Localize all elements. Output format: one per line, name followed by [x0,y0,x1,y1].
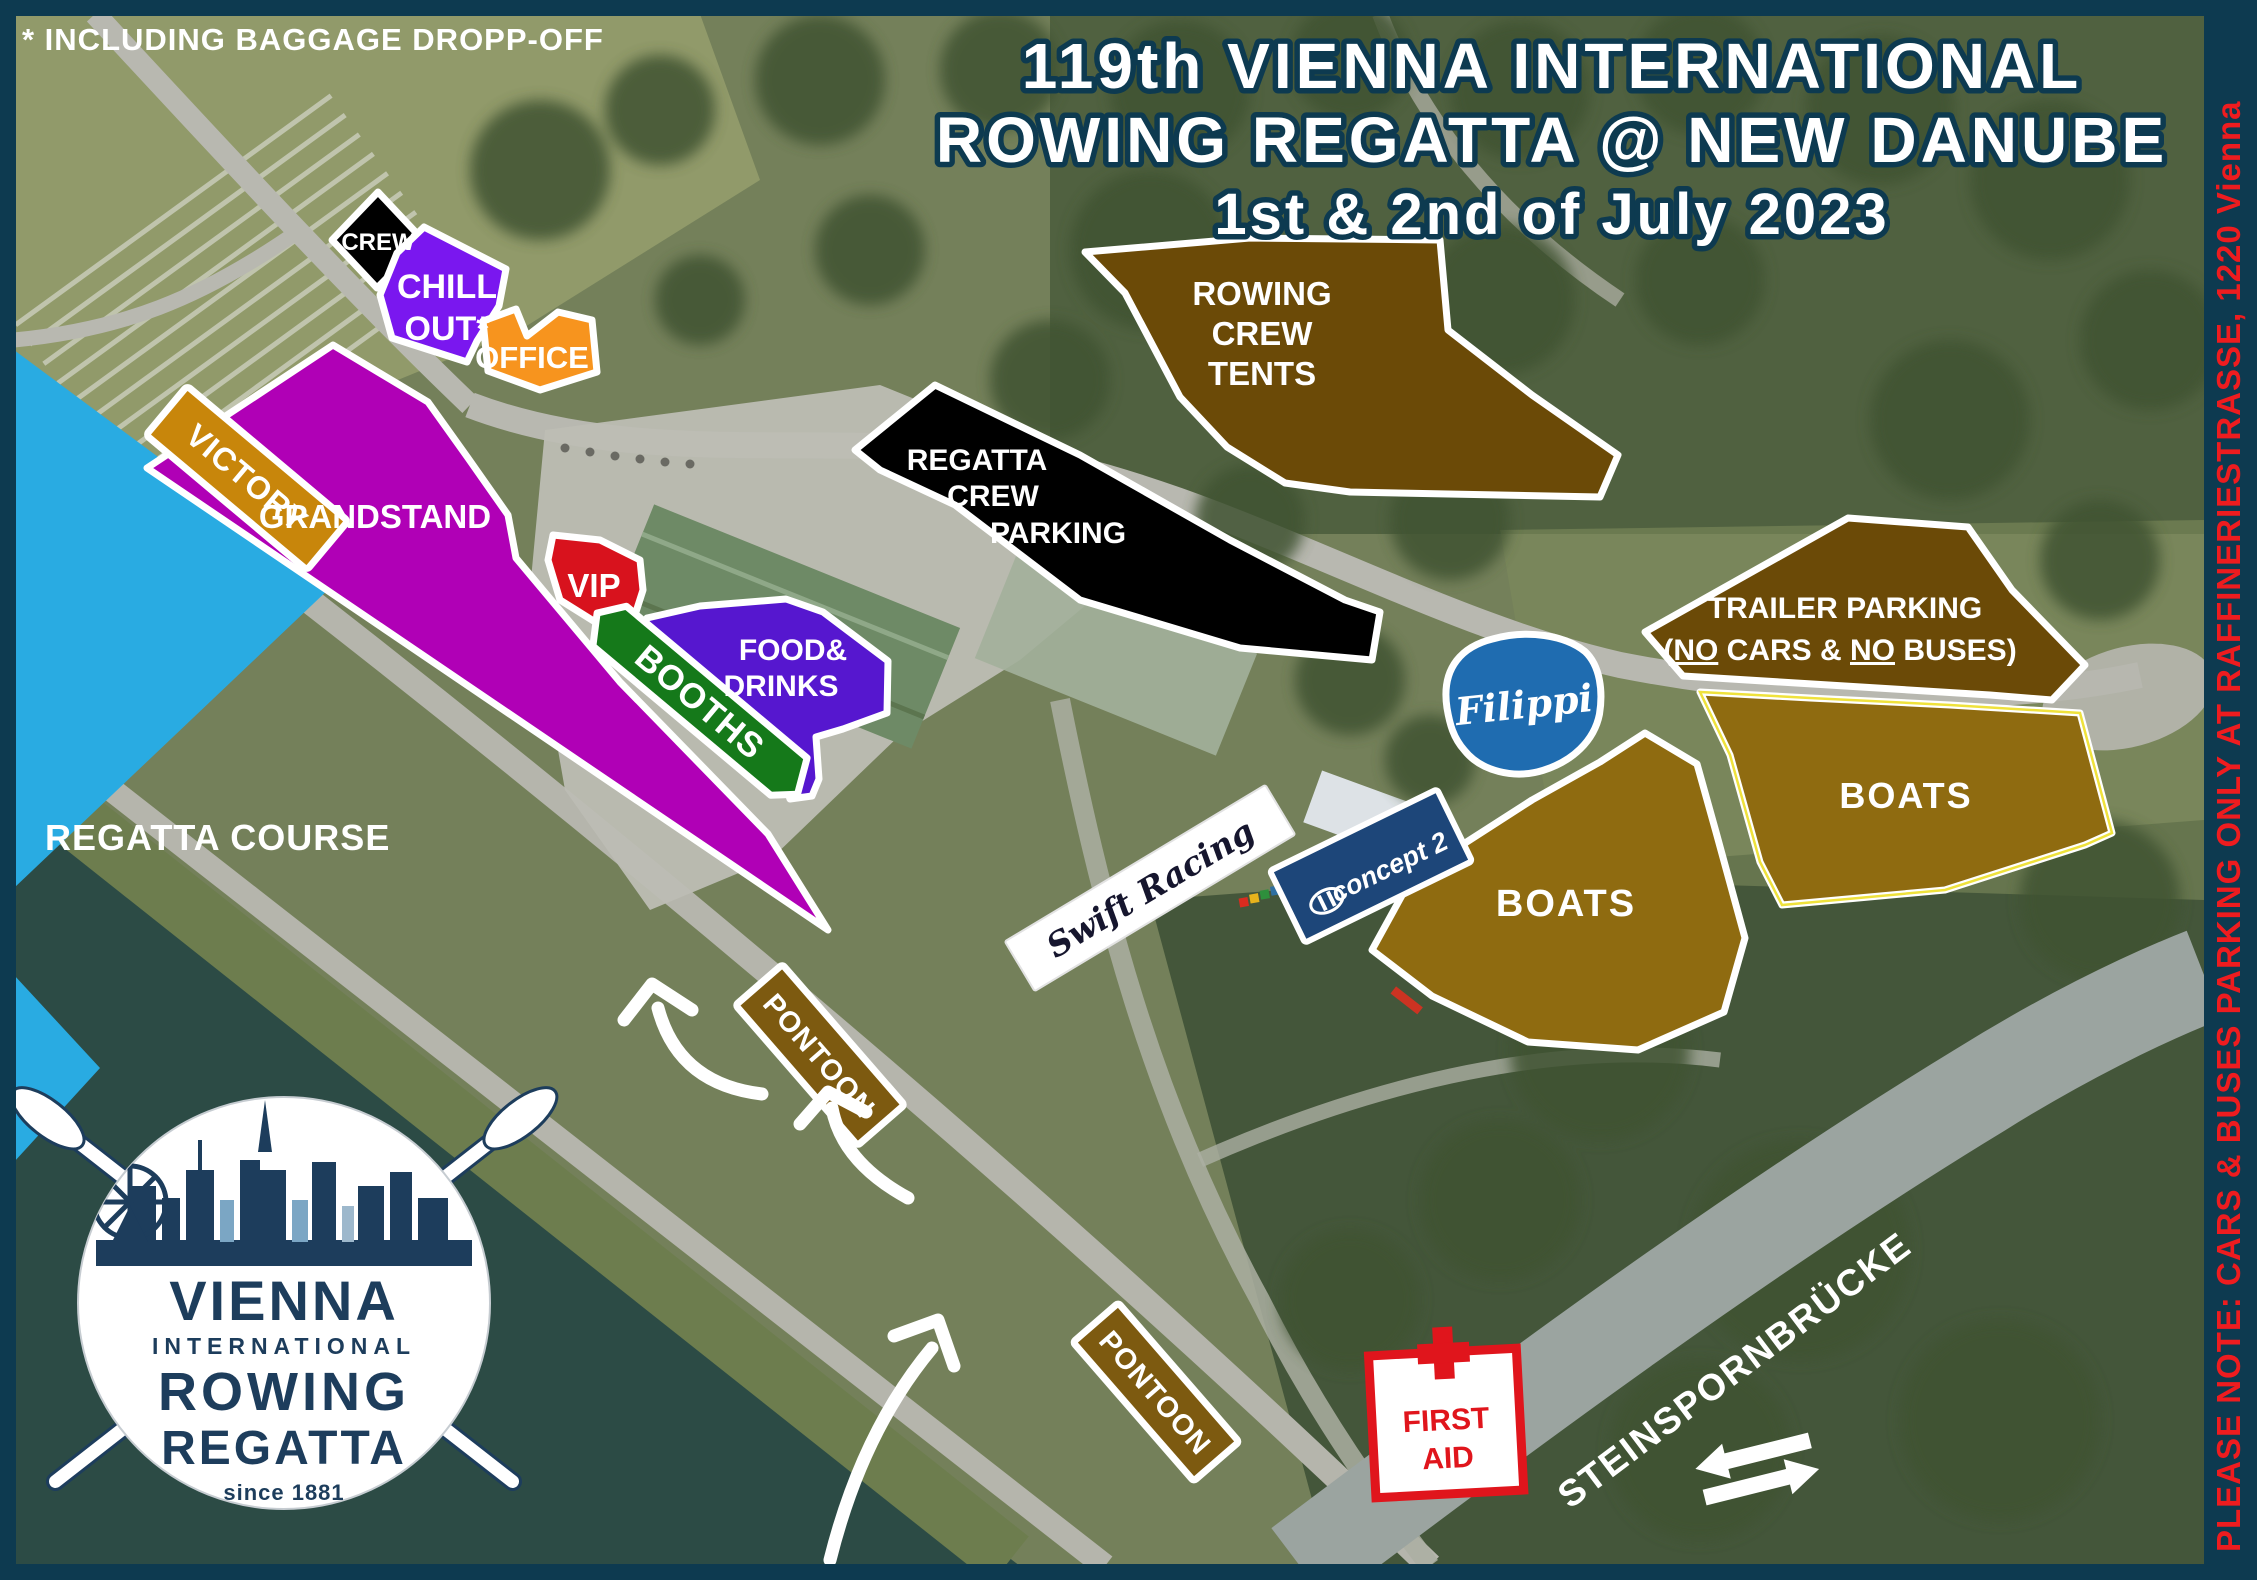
tents-label-3: TENTS [1208,355,1316,392]
badge-text: VIENNA INTERNATIONAL ROWING REGATTA sinc… [152,1269,416,1505]
badge-line2: INTERNATIONAL [152,1333,416,1359]
regatta-course-label: REGATTA COURSE [45,817,390,858]
trailer-parking-label-2: (NO CARS & NO BUSES) [1663,634,2016,667]
title-line2: ROWING REGATTA @ NEW DANUBE [936,104,2168,176]
badge-line3: ROWING [158,1362,410,1422]
vip-label: VIP [567,567,620,604]
title-line1: 119th VIENNA INTERNATIONAL [1022,30,2083,102]
first-aid-label-2: AID [1421,1441,1474,1477]
food-drinks-label-2: DRINKS [723,670,838,703]
crew-label: CREW [341,229,415,256]
chill-out-label-1: CHILL [397,268,497,306]
badge-line1: VIENNA [169,1269,399,1332]
baggage-note: * INCLUDING BAGGAGE DROPP-OFF [22,22,604,57]
rcp-label-3: PARKING [990,517,1126,550]
food-drinks-label-1: FOOD& [739,634,847,667]
office-label: OFFICE [475,340,589,375]
trailer-parking-label-1: TRAILER PARKING [1708,592,1982,625]
side-parking-note: PLEASE NOTE: CARS & BUSES PARKING ONLY A… [2210,100,2247,1552]
boats-left-label: BOATS [1496,883,1636,925]
badge-line4: REGATTA [161,1422,407,1475]
tents-label-1: ROWING [1192,275,1331,312]
rcp-label-1: REGATTA [907,444,1048,477]
rcp-label-2: CREW [947,480,1039,513]
venue-map: REGATTA COURSE GRANDSTAND VICTORY CREW C… [0,0,2257,1580]
tents-label-2: CREW [1212,315,1314,352]
first-aid-label-1: FIRST [1402,1402,1490,1439]
badge-line5: since 1881 [223,1480,344,1505]
boats-right-label: BOATS [1839,775,1972,816]
title-line3: 1st & 2nd of July 2023 [1214,182,1889,247]
regatta-venue-map-poster: REGATTA COURSE GRANDSTAND VICTORY CREW C… [0,0,2257,1580]
